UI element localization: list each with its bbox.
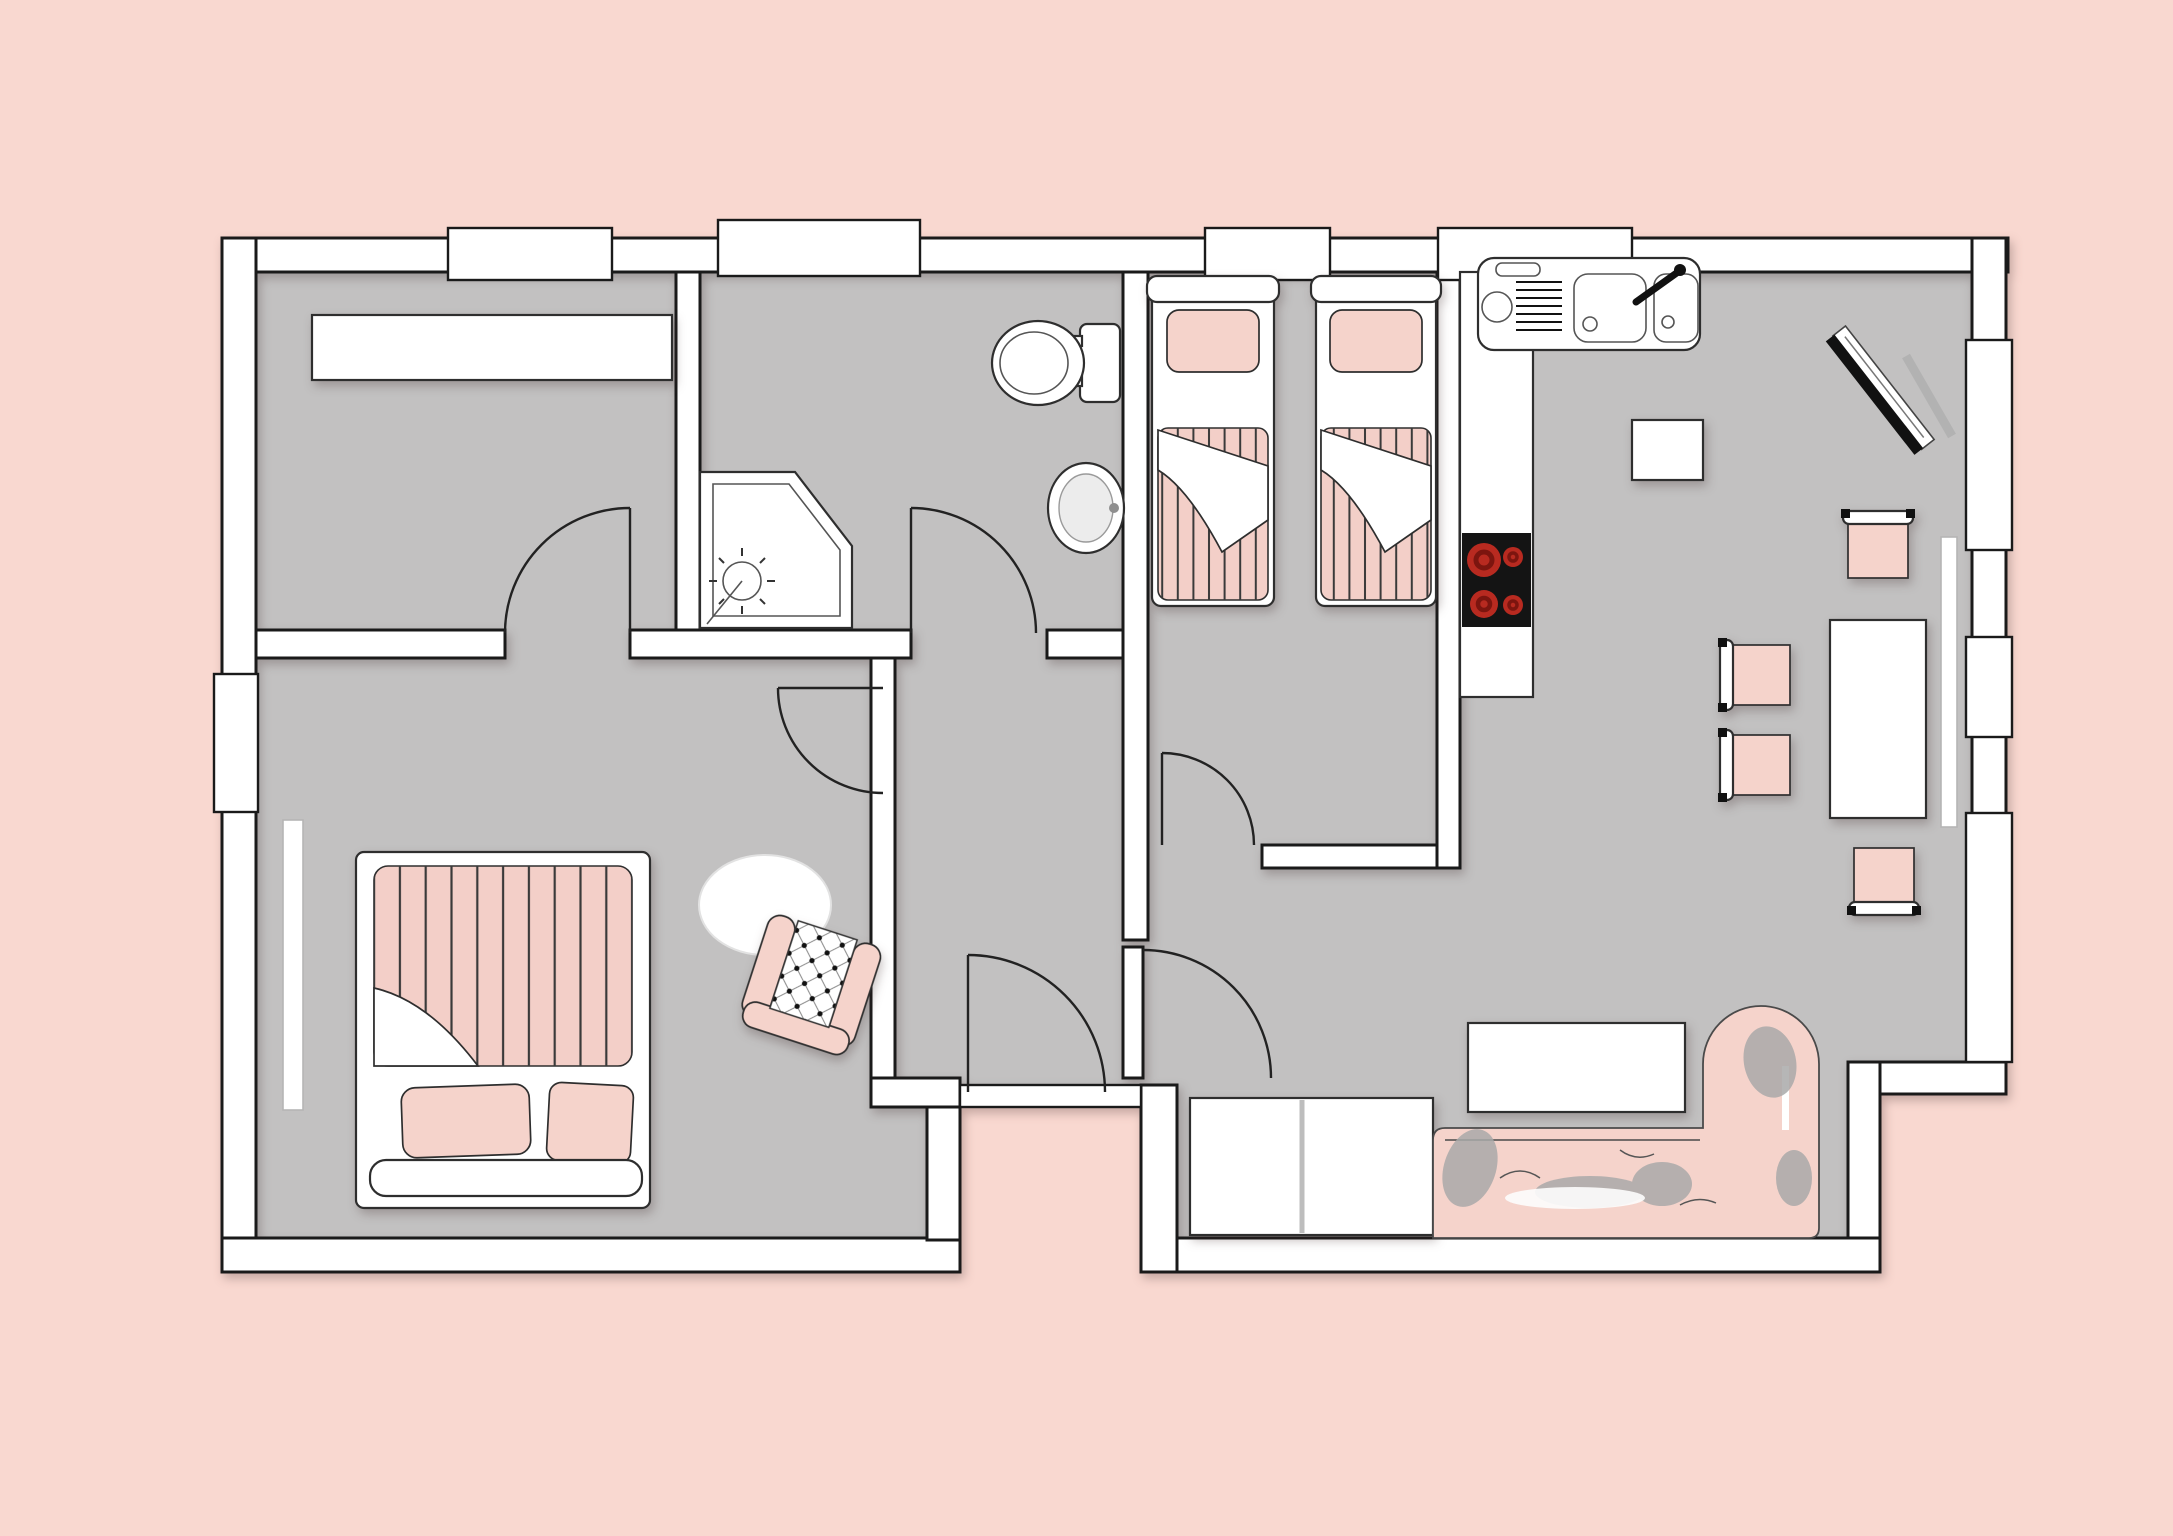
wash-basin <box>1048 463 1124 553</box>
dining-chair-bottom <box>1847 848 1921 915</box>
drainer-icon <box>1516 282 1562 330</box>
bed-pillow-right <box>546 1082 634 1164</box>
cooktop <box>1462 533 1531 627</box>
radiator-right <box>1941 537 1957 827</box>
wall-room1-bath <box>676 272 700 658</box>
window-top-3 <box>1205 228 1330 280</box>
side-table <box>1632 420 1703 480</box>
wall-alcove-left <box>927 1107 960 1240</box>
wall-h1-a <box>256 630 505 658</box>
window-right-1 <box>1966 340 2012 550</box>
floor-plan-canvas: apartment floor plan <box>0 0 2173 1536</box>
radiator-left <box>283 820 303 1110</box>
dining-table <box>1830 620 1926 818</box>
single-bed-left <box>1147 276 1279 606</box>
double-bed <box>356 852 650 1208</box>
wall-bath-twin <box>1123 272 1148 940</box>
bed-pillow-left <box>401 1084 531 1158</box>
dining-chair-left-upper <box>1718 638 1790 712</box>
dining-chair-top <box>1841 509 1915 578</box>
window-right-3 <box>1966 813 2012 1062</box>
entry-mats <box>1190 1098 1433 1235</box>
wall-alcove-right <box>1141 1085 1177 1272</box>
room-bedroom-top-left <box>312 315 672 380</box>
wall-bottom-right <box>1177 1238 1880 1272</box>
floor-plan: apartment floor plan <box>0 0 2173 1536</box>
window-right-2 <box>1966 637 2012 737</box>
wall-hall-left <box>871 658 895 1078</box>
wardrobe <box>312 315 672 380</box>
hall-living-door-leaf <box>1123 947 1143 1078</box>
single-bed-right <box>1311 276 1441 606</box>
wall-hall-stub <box>871 1078 960 1107</box>
wall-twin-bottom <box>1262 845 1460 868</box>
headboard <box>370 1160 642 1196</box>
wall-h1-b <box>630 630 911 658</box>
double-sink-unit <box>1478 258 1700 350</box>
faucet-icon <box>1109 503 1119 513</box>
coffee-table <box>1468 1023 1685 1112</box>
dining-chair-left-lower <box>1718 728 1790 802</box>
front-door-threshold <box>960 1085 1141 1107</box>
window-top-2 <box>718 220 920 276</box>
window-left <box>214 674 258 812</box>
window-top-1 <box>448 228 612 280</box>
wall-twin-right <box>1437 272 1460 868</box>
wall-bottom-left <box>222 1238 960 1272</box>
toilet <box>992 321 1120 405</box>
